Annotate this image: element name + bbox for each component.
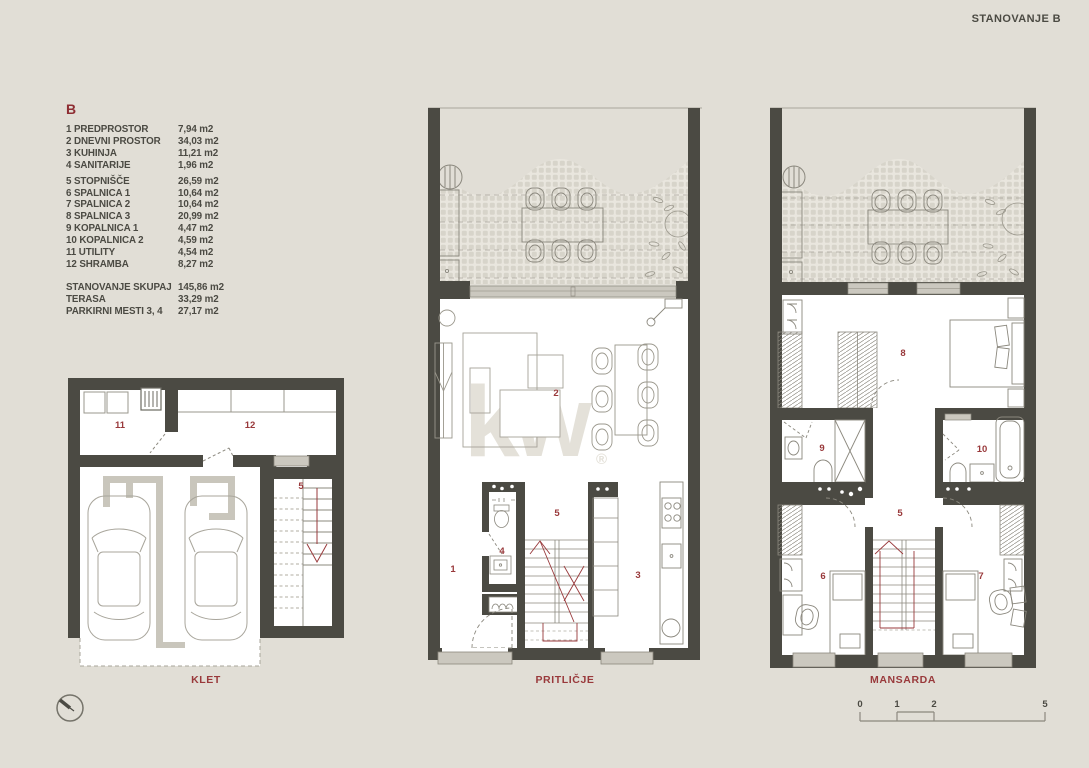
room-number-spalnica2: 7 [978, 571, 983, 582]
legend-row: 10 KOPALNICA 24,59 m2 [66, 235, 316, 247]
legend-total-row: STANOVANJE SKUPAJ145,86 m2 [66, 282, 316, 294]
terrace-tree [783, 166, 805, 188]
legend-row: 5 STOPNIŠČE26,59 m2 [66, 176, 316, 188]
room-number-stairs: 5 [298, 481, 304, 492]
terrace-paving [440, 159, 688, 284]
legend-row: 11 UTILITY4,54 m2 [66, 247, 316, 259]
legend-row: 6 SPALNICA 110,64 m2 [66, 188, 316, 200]
room-number-kopalnica1: 9 [819, 443, 824, 454]
room-number-shramba: 12 [245, 420, 256, 431]
scale-tick-1: 1 [894, 699, 900, 710]
sheet-title: STANOVANJE B [972, 13, 1061, 25]
legend-row: 12 SHRAMBA8,27 m2 [66, 259, 316, 271]
legend-row: 3 KUHINJA11,21 m2 [66, 148, 316, 160]
room-number-stairs: 5 [897, 508, 903, 519]
mansarda-label: MANSARDA [768, 674, 1038, 686]
room-number-utility: 11 [115, 420, 126, 431]
room-number-predprostor: 1 [450, 564, 456, 575]
room-number-spalnica3: 8 [900, 348, 905, 359]
scale-tick-0: 0 [857, 699, 862, 710]
pritlicje-label: PRITLIČJE [426, 674, 704, 686]
legend-row: 7 SPALNICA 210,64 m2 [66, 199, 316, 211]
legend-row: 9 KOPALNICA 14,47 m2 [66, 223, 316, 235]
bed-single [943, 571, 978, 655]
north-arrow-icon [52, 690, 88, 726]
legend-total-row: PARKIRNI MESTI 3, 427,17 m2 [66, 306, 316, 318]
terrace-tree [438, 165, 462, 189]
svg-text:®: ® [596, 451, 607, 468]
bed-single [830, 571, 865, 655]
terrace-paving [782, 159, 1024, 284]
pritlicje-floor-plan: kw ® [426, 104, 704, 670]
drawing-sheet: STANOVANJE B B 1 PREDPROSTOR7,94 m2 2 DN… [0, 0, 1089, 768]
room-number-kopalnica2: 10 [977, 444, 988, 455]
klet-floor-plan: 11 12 5 [64, 376, 348, 672]
legend-totals: STANOVANJE SKUPAJ145,86 m2 TERASA33,29 m… [66, 282, 316, 318]
room-number-sanitarije: 4 [499, 546, 505, 557]
legend-row: 8 SPALNICA 320,99 m2 [66, 211, 316, 223]
legend-heading: B [66, 101, 316, 117]
mansarda-floor-plan: 8 9 10 5 6 7 [768, 104, 1038, 670]
klet-label: KLET [64, 674, 348, 686]
legend-row: 2 DNEVNI PROSTOR34,03 m2 [66, 136, 316, 148]
legend-total-row: TERASA33,29 m2 [66, 294, 316, 306]
room-number-dnevni: 2 [553, 388, 558, 399]
scale-tick-5: 5 [1042, 699, 1048, 710]
scale-bar: 0 1 2 5 [854, 697, 1054, 727]
scale-tick-2: 2 [931, 699, 936, 710]
room-number-kuhinja: 3 [635, 570, 640, 581]
legend-row: 1 PREDPROSTOR7,94 m2 [66, 124, 316, 136]
room-number-stairs: 5 [554, 508, 560, 519]
room-legend: B 1 PREDPROSTOR7,94 m2 2 DNEVNI PROSTOR3… [66, 101, 316, 318]
legend-row: 4 SANITARIJE1,96 m2 [66, 160, 316, 172]
room-number-spalnica1: 6 [820, 571, 825, 582]
